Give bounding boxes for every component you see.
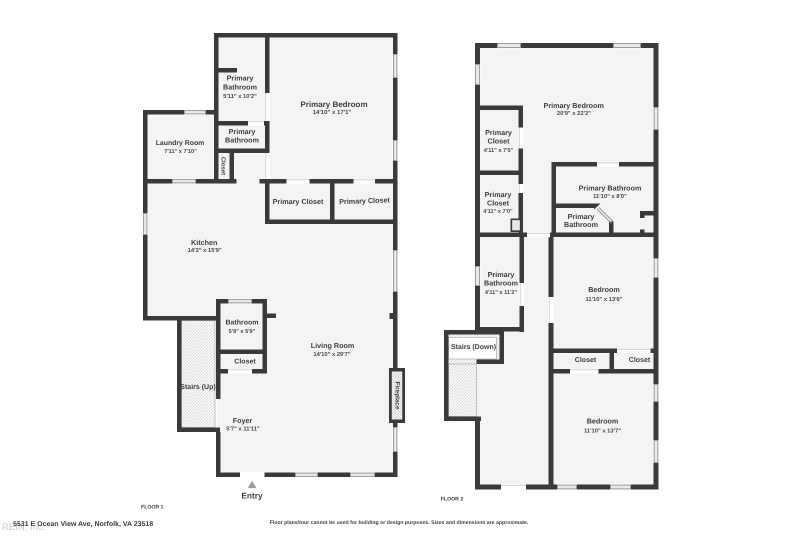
svg-text:Stairs (Down): Stairs (Down): [451, 343, 496, 351]
svg-text:Closet: Closet: [629, 356, 651, 364]
svg-text:Fireplace: Fireplace: [394, 381, 401, 410]
svg-text:Primary Closet: Primary Closet: [273, 197, 324, 206]
svg-text:Entry: Entry: [241, 490, 263, 500]
svg-text:5531 E Ocean View Ave, Norfolk: 5531 E Ocean View Ave, Norfolk, VA 23518: [13, 520, 153, 528]
svg-text:FLOOR 2: FLOOR 2: [441, 497, 464, 503]
svg-text:Bedroom: Bedroom: [587, 417, 619, 426]
svg-text:Stairs (Up): Stairs (Up): [180, 383, 215, 391]
svg-text:Living Room: Living Room: [311, 341, 355, 350]
svg-text:14'10" x 17'1": 14'10" x 17'1": [313, 109, 352, 116]
svg-text:Bathroom: Bathroom: [223, 83, 257, 92]
svg-text:Closet: Closet: [575, 356, 597, 364]
svg-text:Closet: Closet: [487, 199, 510, 208]
svg-text:5'8" x 5'9": 5'8" x 5'9": [229, 329, 256, 335]
svg-text:Bathroom: Bathroom: [225, 319, 258, 327]
svg-text:11'10" x 8'0": 11'10" x 8'0": [593, 193, 627, 200]
svg-text:Primary Closet: Primary Closet: [339, 195, 391, 206]
svg-text:Primary Bedroom: Primary Bedroom: [544, 101, 604, 110]
svg-text:5'11" x 10'2": 5'11" x 10'2": [223, 93, 257, 100]
svg-text:11'10" x 13'6": 11'10" x 13'6": [586, 296, 623, 303]
svg-text:4'11" x 11'2": 4'11" x 11'2": [485, 290, 518, 296]
svg-text:4'11" x 7'0": 4'11" x 7'0": [483, 209, 513, 215]
svg-text:Kitchen: Kitchen: [191, 238, 217, 247]
svg-text:Primary Bathroom: Primary Bathroom: [579, 184, 642, 193]
svg-text:Closet: Closet: [234, 358, 256, 366]
svg-text:Laundry Room: Laundry Room: [156, 140, 205, 147]
svg-text:11'10" x 13'7": 11'10" x 13'7": [584, 428, 621, 435]
svg-text:4'11" x 7'5": 4'11" x 7'5": [484, 148, 514, 154]
svg-text:5'7" x 11'11": 5'7" x 11'11": [226, 427, 260, 433]
svg-text:7'11" x 7'10": 7'11" x 7'10": [164, 149, 197, 155]
svg-text:Primary Bedroom: Primary Bedroom: [300, 100, 367, 109]
svg-text:Foyer: Foyer: [233, 416, 253, 425]
svg-text:14'10" x 29'7": 14'10" x 29'7": [313, 351, 351, 358]
svg-text:Closet: Closet: [220, 157, 227, 175]
svg-text:FLOOR 1: FLOOR 1: [141, 505, 164, 511]
svg-text:Bathroom: Bathroom: [225, 136, 259, 145]
svg-text:Floor plans/tour cannot be use: Floor plans/tour cannot be used for buil…: [270, 520, 529, 526]
svg-text:20'9" x 22'2": 20'9" x 22'2": [557, 110, 591, 117]
svg-text:Primary: Primary: [227, 74, 254, 83]
svg-text:Closet: Closet: [488, 137, 511, 146]
svg-text:Bathroom: Bathroom: [564, 220, 598, 229]
svg-text:14'3" x 15'9": 14'3" x 15'9": [188, 247, 222, 254]
svg-text:Bathroom: Bathroom: [484, 279, 518, 288]
svg-text:Bedroom: Bedroom: [588, 285, 620, 294]
